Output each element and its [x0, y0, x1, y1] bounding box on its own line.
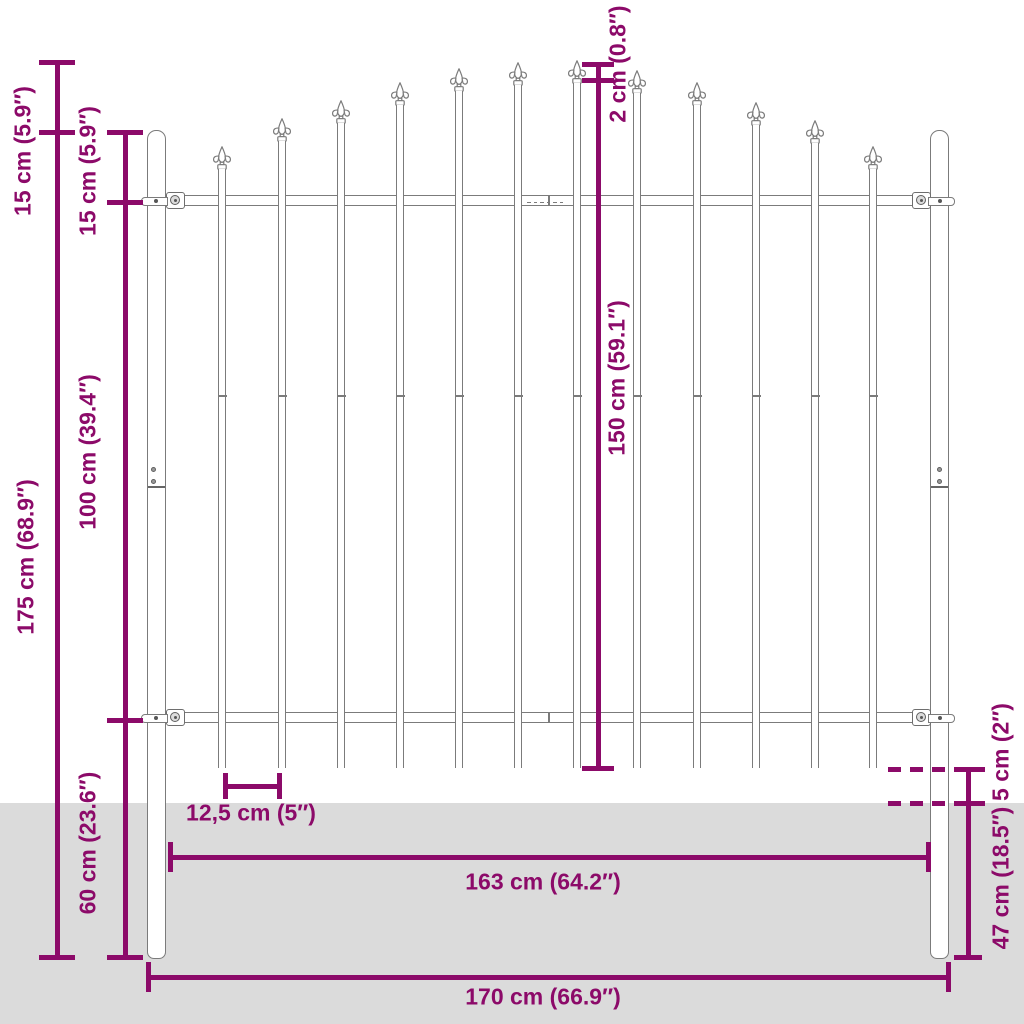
- dim-label-total-width: 170 cm (66.9″): [465, 986, 621, 1009]
- dim-tick: [146, 962, 151, 992]
- fence-picket: [271, 118, 293, 768]
- fence-picket: [686, 82, 708, 768]
- picket-joint: [514, 395, 523, 397]
- screw-dot: [174, 199, 178, 203]
- picket-joint: [396, 395, 405, 397]
- picket-shaft: [396, 105, 403, 768]
- weld-dash: [560, 202, 564, 204]
- picket-shaft: [693, 105, 700, 768]
- rail-seam: [548, 713, 550, 722]
- picket-joint: [278, 395, 287, 397]
- dim-tick: [107, 200, 143, 205]
- fence-picket: [745, 102, 767, 768]
- spear-finial-icon: [507, 62, 529, 86]
- dim-tick: [277, 773, 282, 799]
- fence-post: [930, 130, 949, 959]
- dim-tick: [107, 955, 143, 960]
- picket-joint: [869, 395, 878, 397]
- picket-shaft: [455, 91, 462, 768]
- picket-joint: [811, 395, 820, 397]
- dim-tick: [168, 842, 173, 872]
- dim-tick: [107, 130, 143, 135]
- screw-dot: [174, 716, 178, 720]
- picket-shaft: [514, 85, 521, 768]
- weld-dash: [534, 202, 538, 204]
- picket-shaft: [337, 123, 344, 768]
- dim-tick: [39, 130, 75, 135]
- dim-label-picket-gap: 12,5 cm (5″): [186, 802, 316, 825]
- dashed-line-ground-level: [888, 801, 985, 806]
- dashed-line-picket-bottom-level: [888, 767, 985, 772]
- picket-joint: [633, 395, 642, 397]
- dim-tick: [926, 842, 931, 872]
- post-screw-icon: [937, 479, 942, 484]
- picket-joint: [337, 395, 346, 397]
- spear-finial-icon: [745, 102, 767, 126]
- dim-label-spear-top-height: 15 cm (5.9″): [12, 86, 35, 216]
- bracket-screw-icon: [916, 195, 926, 205]
- rail-seam: [548, 196, 550, 205]
- picket-joint: [218, 395, 227, 397]
- fence-post: [147, 130, 166, 959]
- bracket-screw-icon: [916, 712, 926, 722]
- dim-tick: [954, 955, 982, 960]
- picket-shaft: [869, 169, 876, 768]
- fence-picket: [211, 146, 233, 768]
- picket-joint: [693, 395, 702, 397]
- picket-shaft: [218, 169, 225, 768]
- spear-finial-icon: [862, 146, 884, 170]
- spear-finial-icon: [330, 100, 352, 124]
- picket-shaft: [811, 143, 818, 768]
- weld-dash: [547, 202, 551, 204]
- spear-finial-icon: [211, 146, 233, 170]
- picket-shaft: [573, 83, 580, 768]
- dim-label-inner-width: 163 cm (64.2″): [465, 871, 621, 894]
- picket-joint: [455, 395, 464, 397]
- dim-label-below-rail: 60 cm (23.6″): [77, 772, 100, 915]
- dim-label-ground-clearance: 5 cm (2″): [990, 703, 1013, 801]
- bracket-screw-icon: [170, 195, 180, 205]
- dim-label-total-height: 175 cm (68.9″): [15, 479, 38, 635]
- fence-picket: [566, 60, 588, 768]
- dim-label-post-to-rail: 15 cm (5.9″): [77, 106, 100, 236]
- spear-finial-icon: [686, 82, 708, 106]
- dim-label-peak-step: 2 cm (0.8″): [607, 5, 630, 122]
- post-seam: [148, 486, 165, 488]
- dim-tick: [223, 773, 228, 799]
- dim-line-right-depth: [966, 767, 971, 959]
- post-screw-icon: [151, 479, 156, 484]
- picket-joint: [573, 395, 582, 397]
- dim-line-picket-gap: [225, 784, 279, 789]
- fence-picket: [389, 82, 411, 768]
- post-screw-icon: [937, 467, 942, 472]
- dim-tick: [946, 962, 951, 992]
- dim-tick: [582, 766, 614, 771]
- fence-dimension-diagram: 15 cm (5.9″) 175 cm (68.9″) 15 cm (5.9″)…: [0, 0, 1024, 1024]
- picket-joint: [752, 395, 761, 397]
- spear-finial-icon: [271, 118, 293, 142]
- dim-line-left-inner: [123, 130, 128, 959]
- dim-line-total-width: [148, 975, 948, 980]
- fence-picket: [330, 100, 352, 768]
- fence-picket: [862, 146, 884, 768]
- picket-shaft: [278, 141, 285, 768]
- weld-dash: [540, 202, 544, 204]
- post-screw-icon: [151, 467, 156, 472]
- screw-dot: [920, 199, 924, 203]
- dim-label-picket-height: 150 cm (59.1″): [606, 300, 629, 456]
- spear-finial-icon: [389, 82, 411, 106]
- dim-label-rail-span: 100 cm (39.4″): [77, 374, 100, 530]
- screw-dot: [920, 716, 924, 720]
- dim-line-total-height: [55, 60, 60, 959]
- weld-dash: [553, 202, 557, 204]
- dim-line-picket-height: [596, 62, 601, 770]
- dim-tick: [39, 60, 75, 65]
- picket-shaft: [752, 125, 759, 768]
- dim-line-inner-width: [170, 855, 928, 860]
- dim-label-buried-depth: 47 cm (18.5″): [990, 807, 1013, 950]
- picket-shaft: [633, 93, 640, 768]
- fence-picket: [804, 120, 826, 768]
- post-seam: [931, 486, 948, 488]
- fence-picket: [448, 68, 470, 768]
- dim-tick: [107, 718, 143, 723]
- dim-tick: [39, 955, 75, 960]
- spear-finial-icon: [448, 68, 470, 92]
- fence-picket: [507, 62, 529, 768]
- bracket-screw-icon: [170, 712, 180, 722]
- spear-finial-icon: [804, 120, 826, 144]
